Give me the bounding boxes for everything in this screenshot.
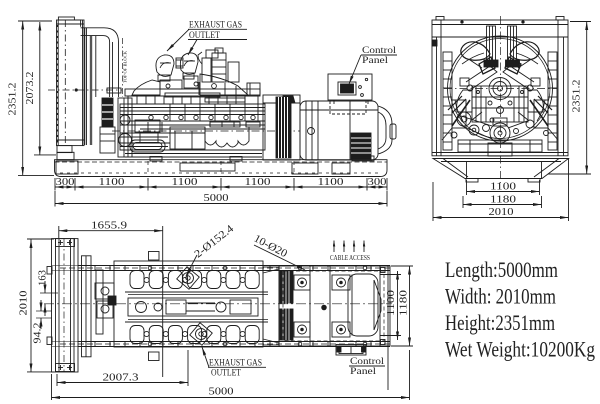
svg-text:2010: 2010 xyxy=(18,290,30,316)
svg-text:2351.2: 2351.2 xyxy=(571,80,583,113)
svg-text:2-Ø152.4: 2-Ø152.4 xyxy=(192,222,236,260)
svg-text:300: 300 xyxy=(368,176,388,188)
svg-text:Height:2351mm: Height:2351mm xyxy=(445,310,555,335)
svg-text:TOP OF BLOCK: TOP OF BLOCK xyxy=(123,50,128,83)
svg-text:5000: 5000 xyxy=(209,386,235,398)
svg-text:1100: 1100 xyxy=(99,176,126,188)
svg-text:Wet Weight:10200Kg: Wet Weight:10200Kg xyxy=(445,337,595,362)
svg-text:CABLE ACCESS: CABLE ACCESS xyxy=(330,254,370,262)
svg-text:1655.9: 1655.9 xyxy=(91,220,128,232)
svg-text:2007.3: 2007.3 xyxy=(103,372,140,384)
svg-text:1100: 1100 xyxy=(385,289,397,316)
svg-text:Panel: Panel xyxy=(350,367,376,377)
svg-text:1180: 1180 xyxy=(490,194,517,206)
svg-text:1180: 1180 xyxy=(398,289,410,316)
svg-text:1100: 1100 xyxy=(172,176,199,188)
svg-text:94.2: 94.2 xyxy=(32,323,44,344)
svg-text:2073.2: 2073.2 xyxy=(24,72,36,105)
svg-text:Length:5000mm: Length:5000mm xyxy=(445,257,558,282)
svg-text:163: 163 xyxy=(37,270,49,286)
svg-text:1100: 1100 xyxy=(490,181,517,193)
svg-text:Control: Control xyxy=(362,46,396,56)
svg-text:5000: 5000 xyxy=(204,192,230,204)
svg-text:300: 300 xyxy=(56,176,76,188)
svg-text:Control: Control xyxy=(350,357,384,367)
svg-text:2351.2: 2351.2 xyxy=(7,83,19,116)
svg-text:2010: 2010 xyxy=(489,206,515,218)
svg-text:1100: 1100 xyxy=(318,176,345,188)
svg-text:Width: 2010mm: Width: 2010mm xyxy=(445,284,556,309)
svg-text:Panel: Panel xyxy=(362,56,388,66)
svg-text:1100: 1100 xyxy=(245,176,272,188)
svg-text:OUTLET: OUTLET xyxy=(211,369,241,379)
